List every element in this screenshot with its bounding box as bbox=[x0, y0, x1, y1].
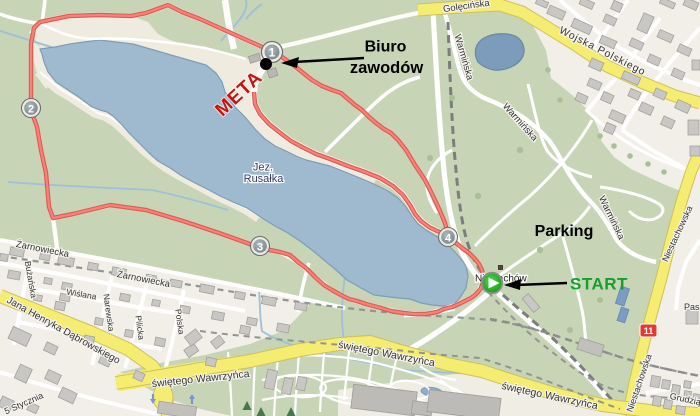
svg-text:2: 2 bbox=[28, 104, 34, 116]
svg-text:Parking: Parking bbox=[535, 223, 594, 240]
svg-text:START: START bbox=[570, 275, 628, 294]
svg-text:zawodów: zawodów bbox=[350, 59, 423, 77]
svg-text:11: 11 bbox=[644, 326, 654, 336]
svg-text:3: 3 bbox=[257, 242, 263, 254]
svg-text:Biuro: Biuro bbox=[365, 39, 407, 56]
svg-text:4: 4 bbox=[445, 233, 452, 245]
svg-text:Pas: Pas bbox=[684, 302, 700, 312]
svg-text:Rusałka: Rusałka bbox=[244, 173, 285, 185]
svg-text:1: 1 bbox=[269, 46, 276, 60]
svg-text:Jez.: Jez. bbox=[253, 161, 273, 173]
